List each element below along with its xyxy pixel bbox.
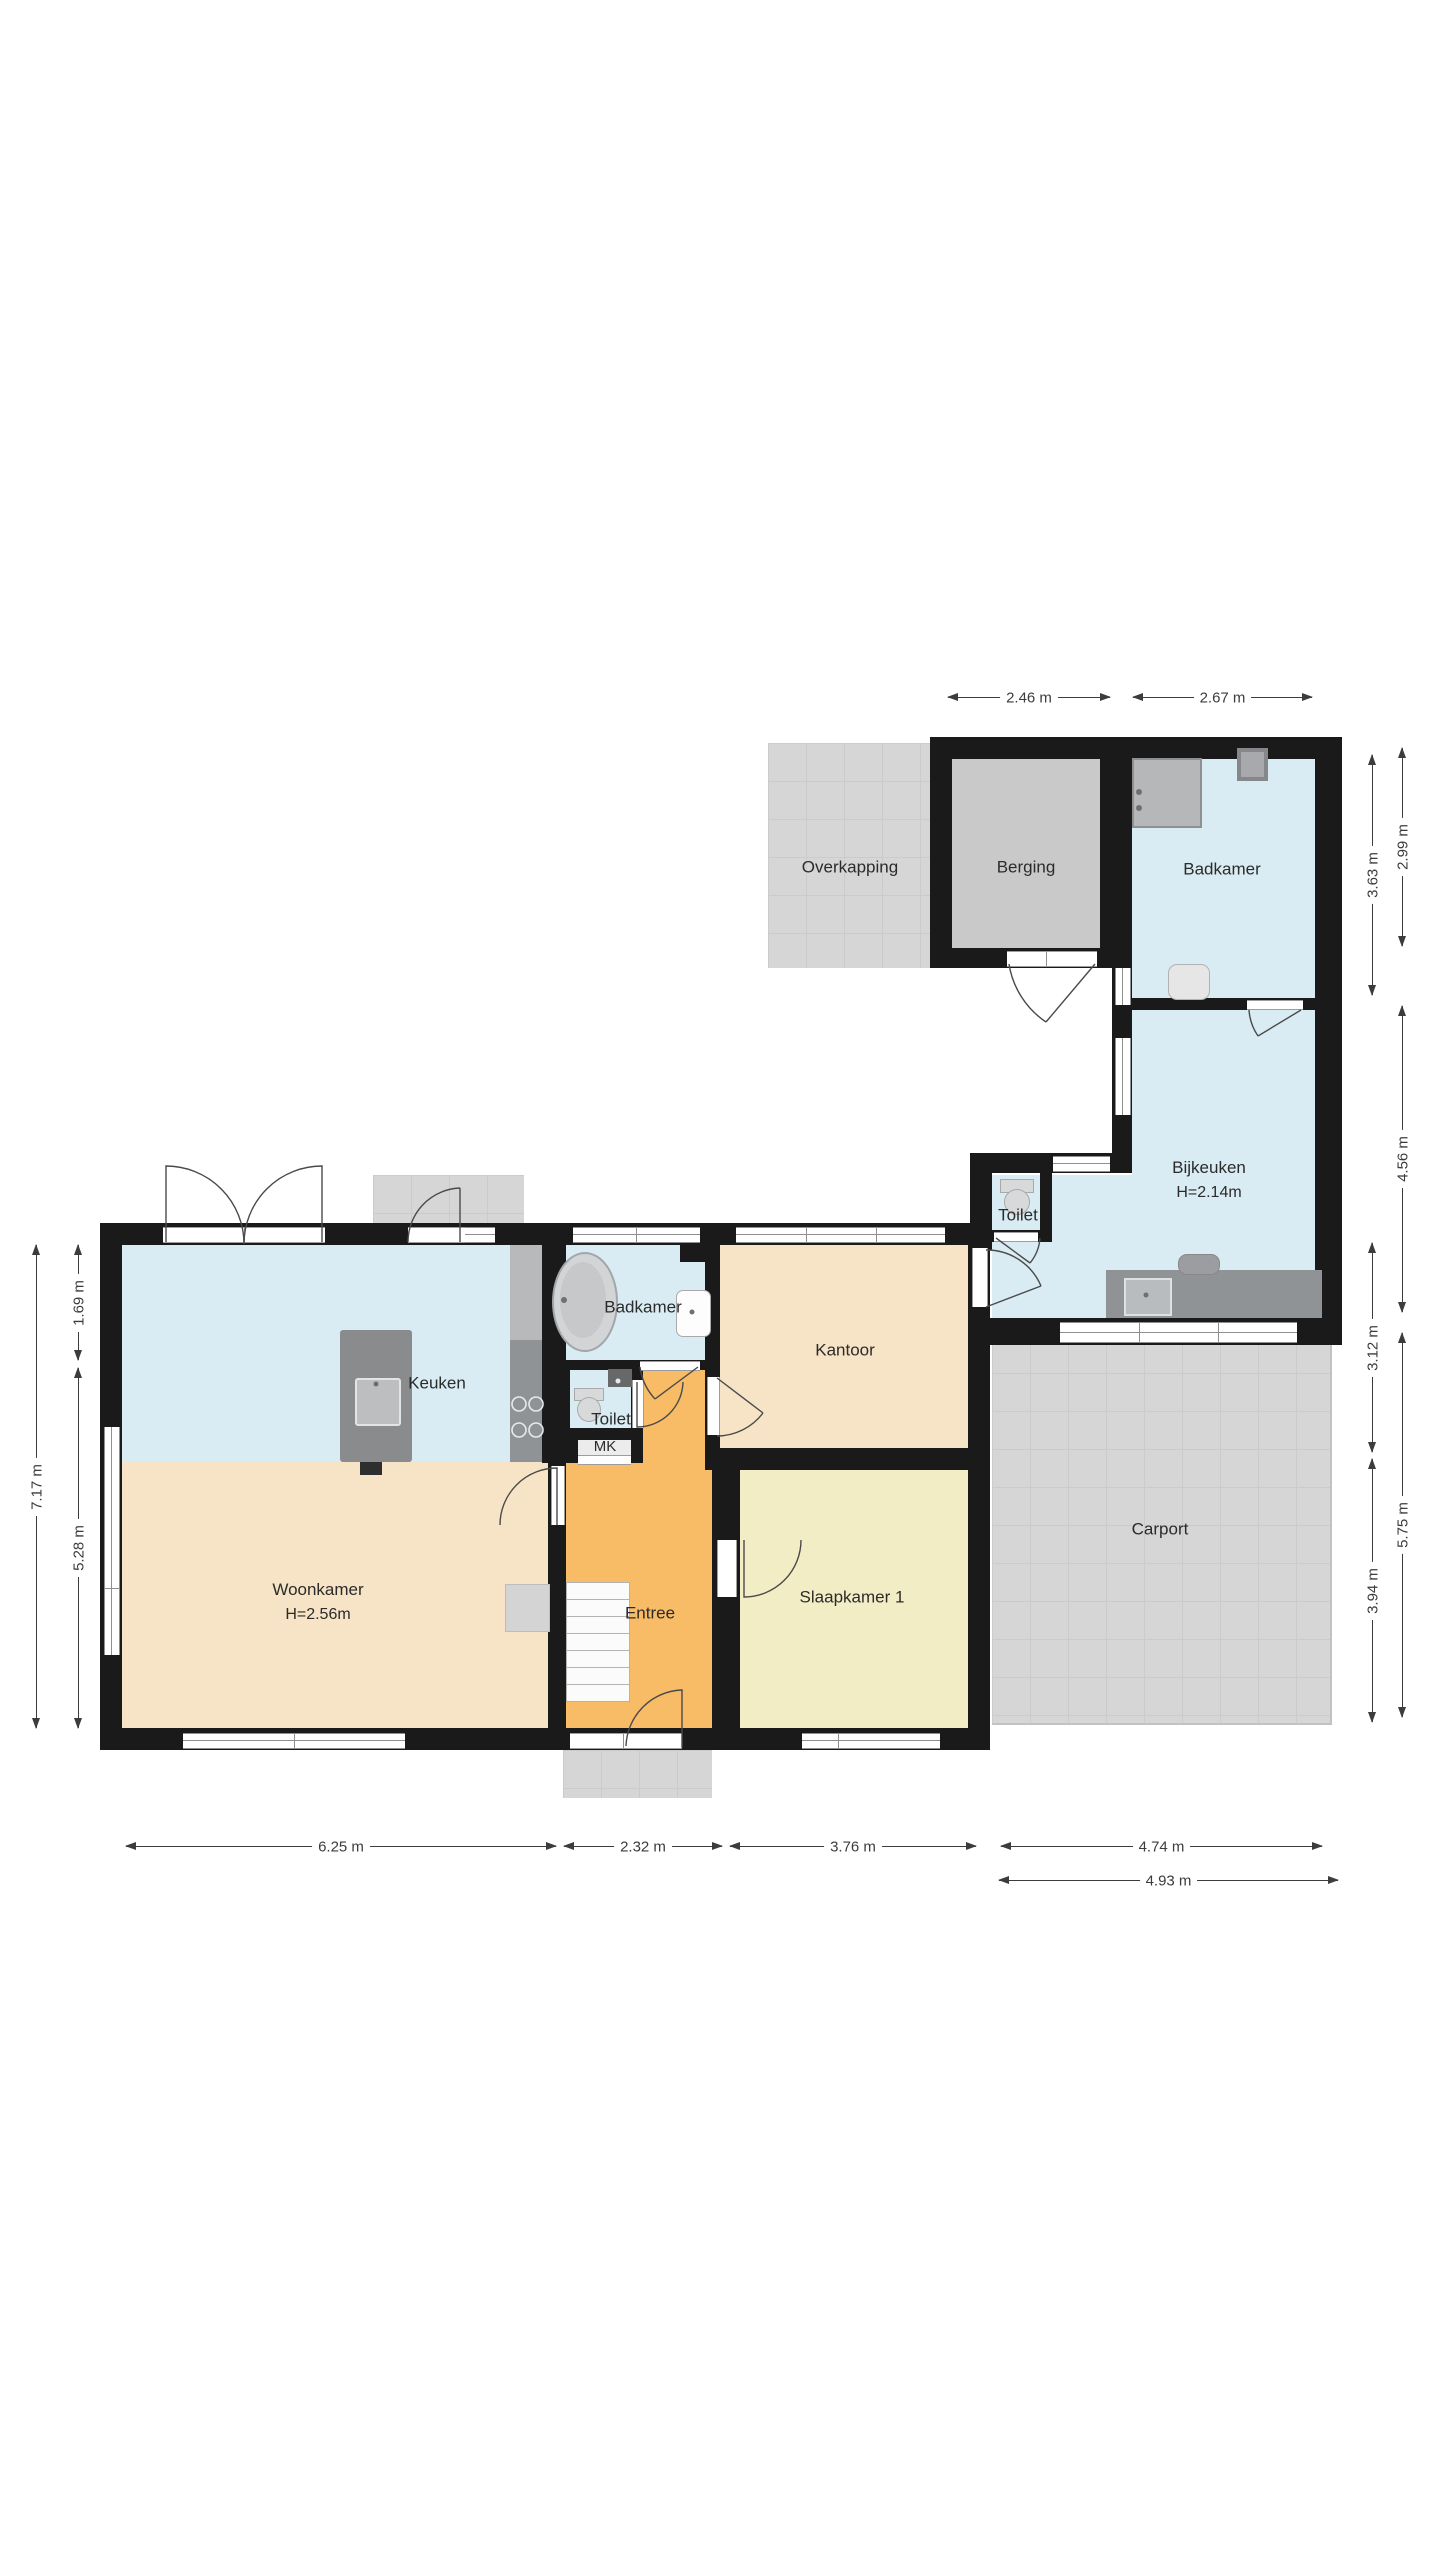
room-label-toilet-bijkeuken: Toilet: [998, 1204, 1038, 1229]
room-label-bijkeuken: BijkeukenH=2.14m: [1172, 1156, 1246, 1204]
room-label-toilet: Toilet: [591, 1408, 631, 1433]
room-label-slaapkamer1: Slaapkamer 1: [800, 1586, 905, 1611]
room-label-badkamer: Badkamer: [604, 1296, 681, 1321]
room-label-berging: Berging: [997, 856, 1056, 881]
french-door-right: [244, 1166, 322, 1244]
french-door-left: [166, 1166, 244, 1244]
room-label-entree: Entree: [625, 1602, 675, 1627]
dim-bottom-232: 2.32 m: [564, 1846, 722, 1847]
room-label-keuken: Keuken: [408, 1372, 466, 1397]
dim-right-394: 3.94 m: [1372, 1459, 1373, 1722]
dim-top-246: 2.46 m: [948, 697, 1110, 698]
dim-left-717: 7.17 m: [36, 1245, 37, 1728]
front-door: [626, 1690, 682, 1748]
slaapkamer-door: [744, 1540, 801, 1597]
dim-bottom-625: 6.25 m: [126, 1846, 556, 1847]
toilet-door: [637, 1382, 683, 1427]
dim-bottom-493: 4.93 m: [999, 1880, 1338, 1881]
dim-bottom-376: 3.76 m: [730, 1846, 976, 1847]
door-swing-overlay: [0, 0, 1440, 2560]
room-label-badkamer-boven: Badkamer: [1183, 858, 1260, 883]
dim-left-528: 5.28 m: [78, 1368, 79, 1728]
dim-left-169: 1.69 m: [78, 1245, 79, 1360]
badkamer-bijkeuken-door: [1249, 1010, 1301, 1036]
berging-door: [1009, 964, 1095, 1022]
room-label-mk: MK: [594, 1436, 617, 1458]
stove-burners: [512, 1397, 543, 1437]
dim-right-456: 4.56 m: [1402, 1006, 1403, 1312]
dim-right-299: 2.99 m: [1402, 748, 1403, 946]
dim-right-363: 3.63 m: [1372, 755, 1373, 995]
room-label-woonkamer: WoonkamerH=2.56m: [272, 1578, 363, 1626]
dim-top-267: 2.67 m: [1133, 697, 1312, 698]
kantoor-door: [717, 1378, 763, 1436]
room-label-carport: Carport: [1132, 1518, 1189, 1543]
dim-right-312: 3.12 m: [1372, 1243, 1373, 1452]
room-label-overkapping: Overkapping: [802, 856, 898, 881]
garden-door: [408, 1188, 460, 1242]
dim-bottom-474: 4.74 m: [1001, 1846, 1322, 1847]
floorplan: Overkapping Berging Badkamer BijkeukenH=…: [0, 0, 1440, 2560]
badkamer-door: [640, 1367, 698, 1399]
room-label-kantoor: Kantoor: [815, 1339, 875, 1364]
dim-right-575: 5.75 m: [1402, 1333, 1403, 1717]
woonkamer-door: [500, 1468, 557, 1525]
